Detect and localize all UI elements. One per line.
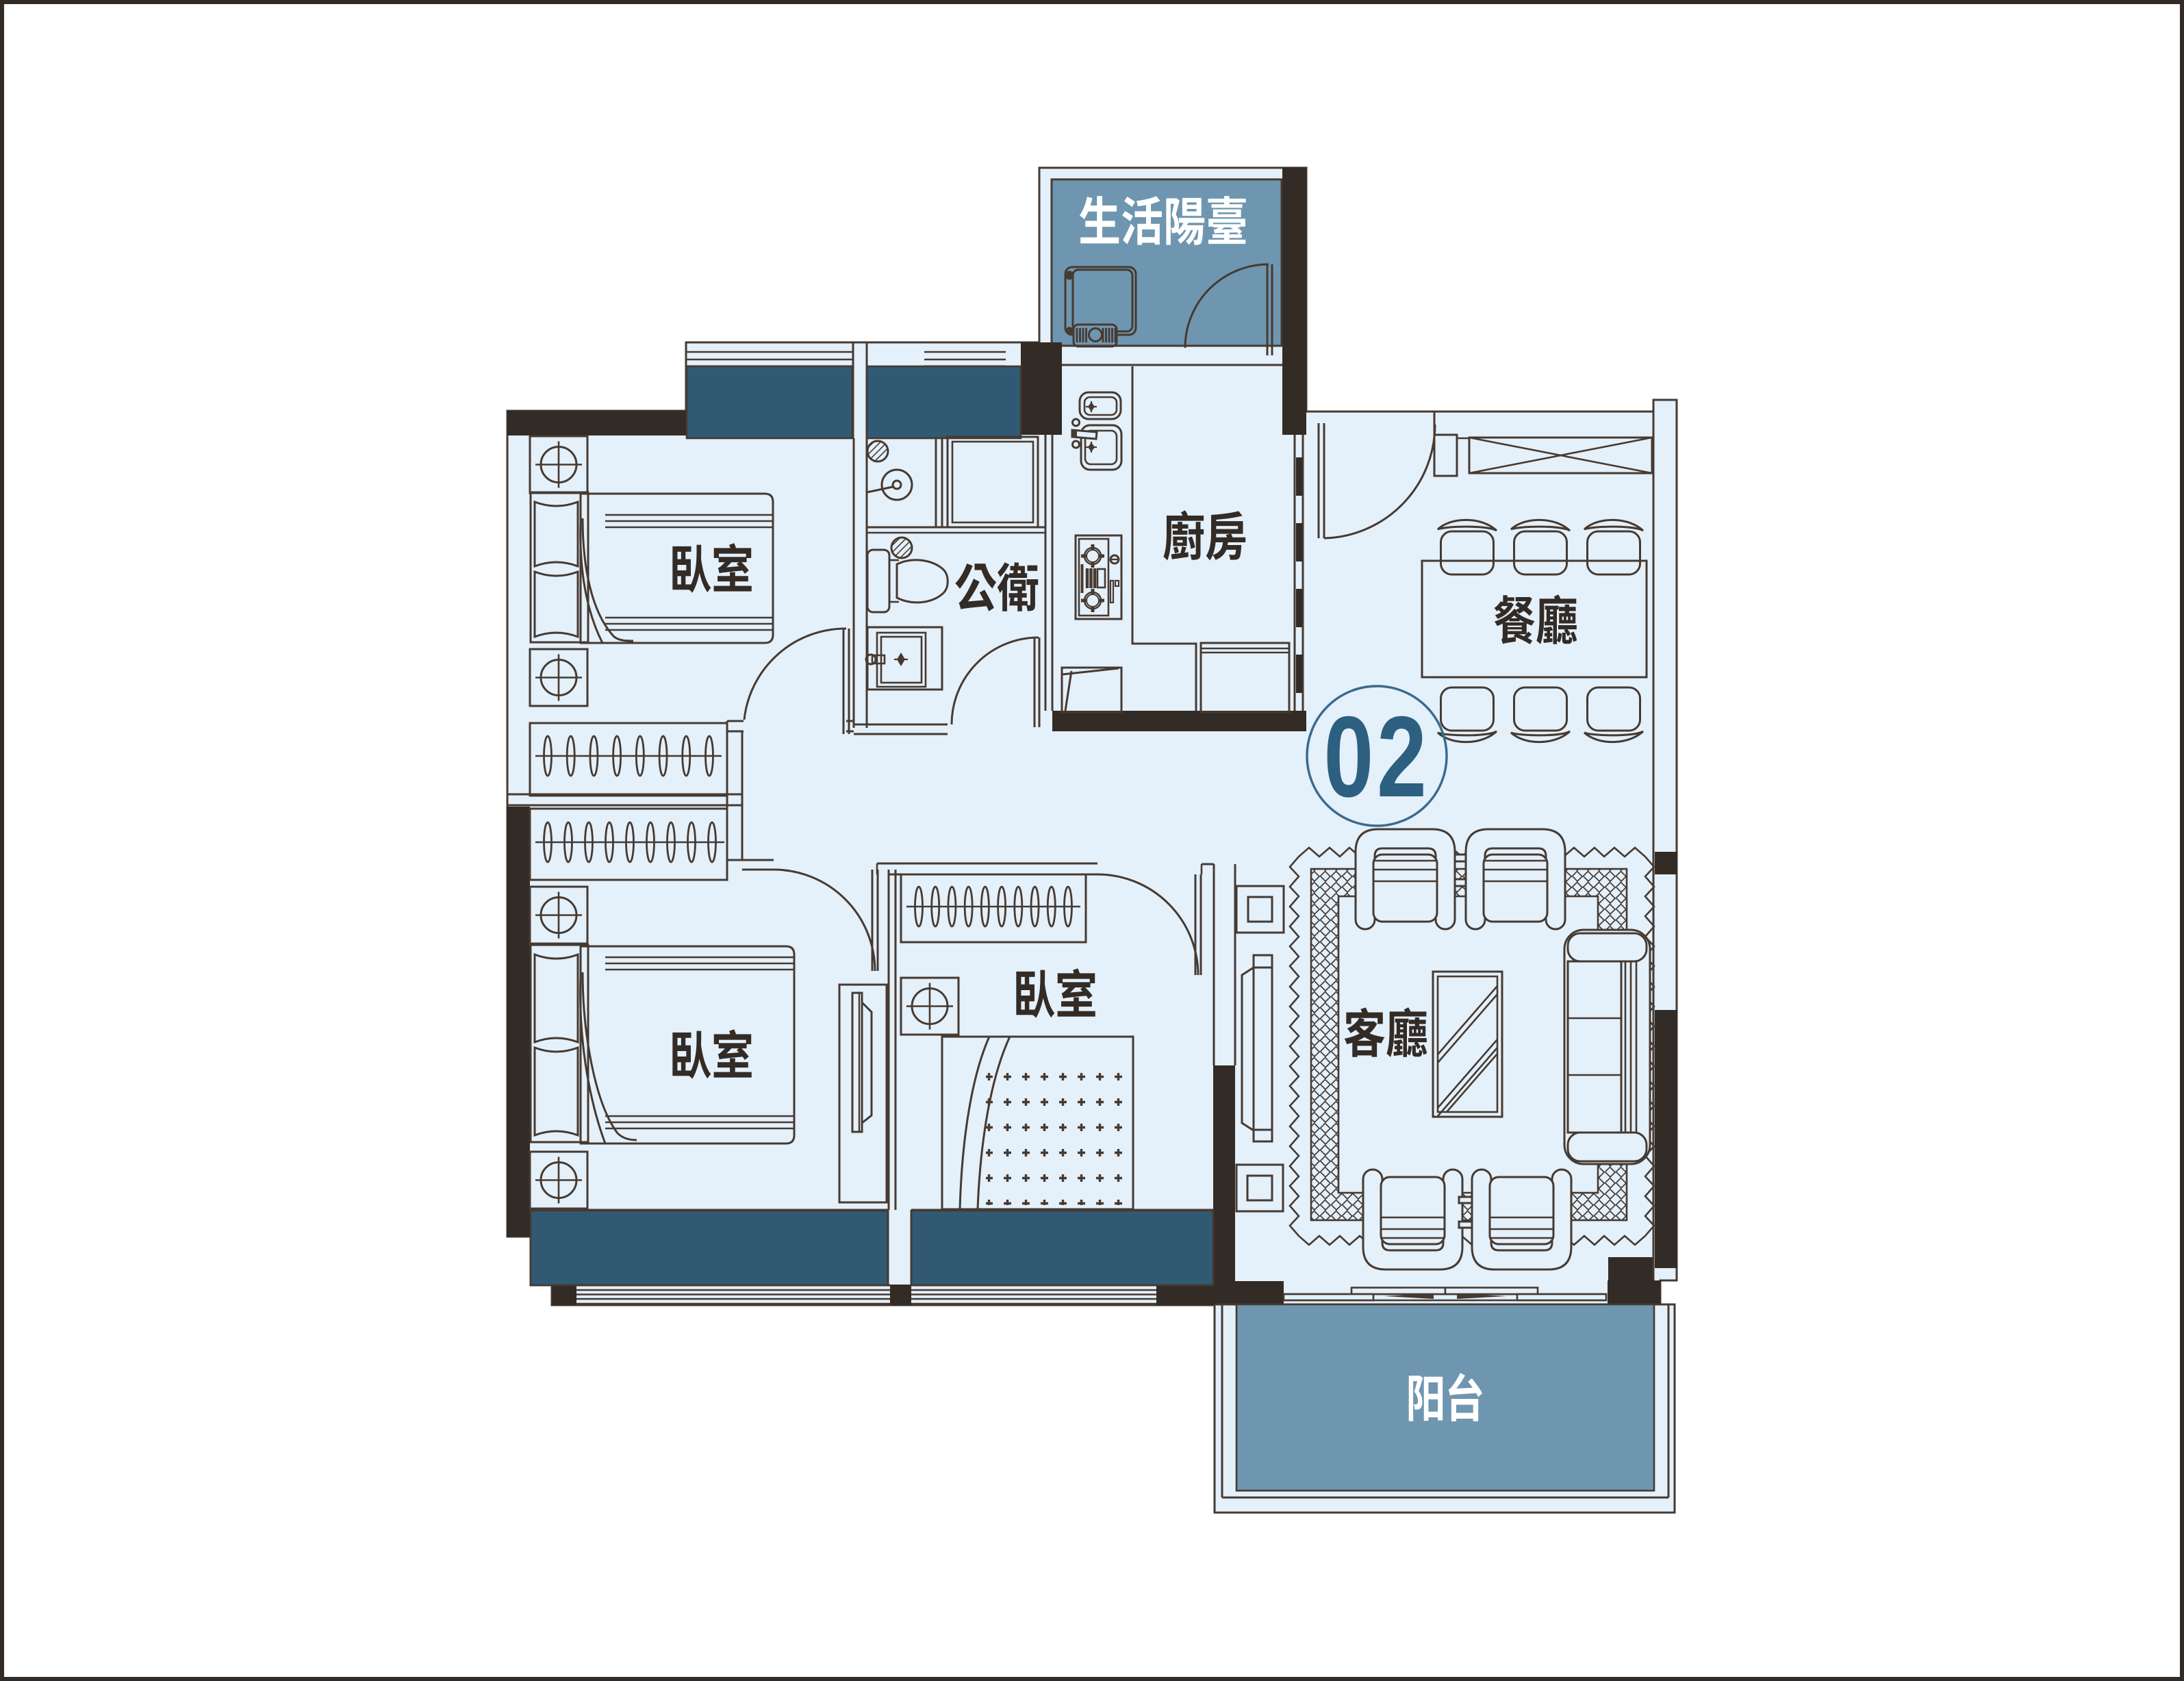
svg-text:02: 02 — [1323, 692, 1430, 820]
